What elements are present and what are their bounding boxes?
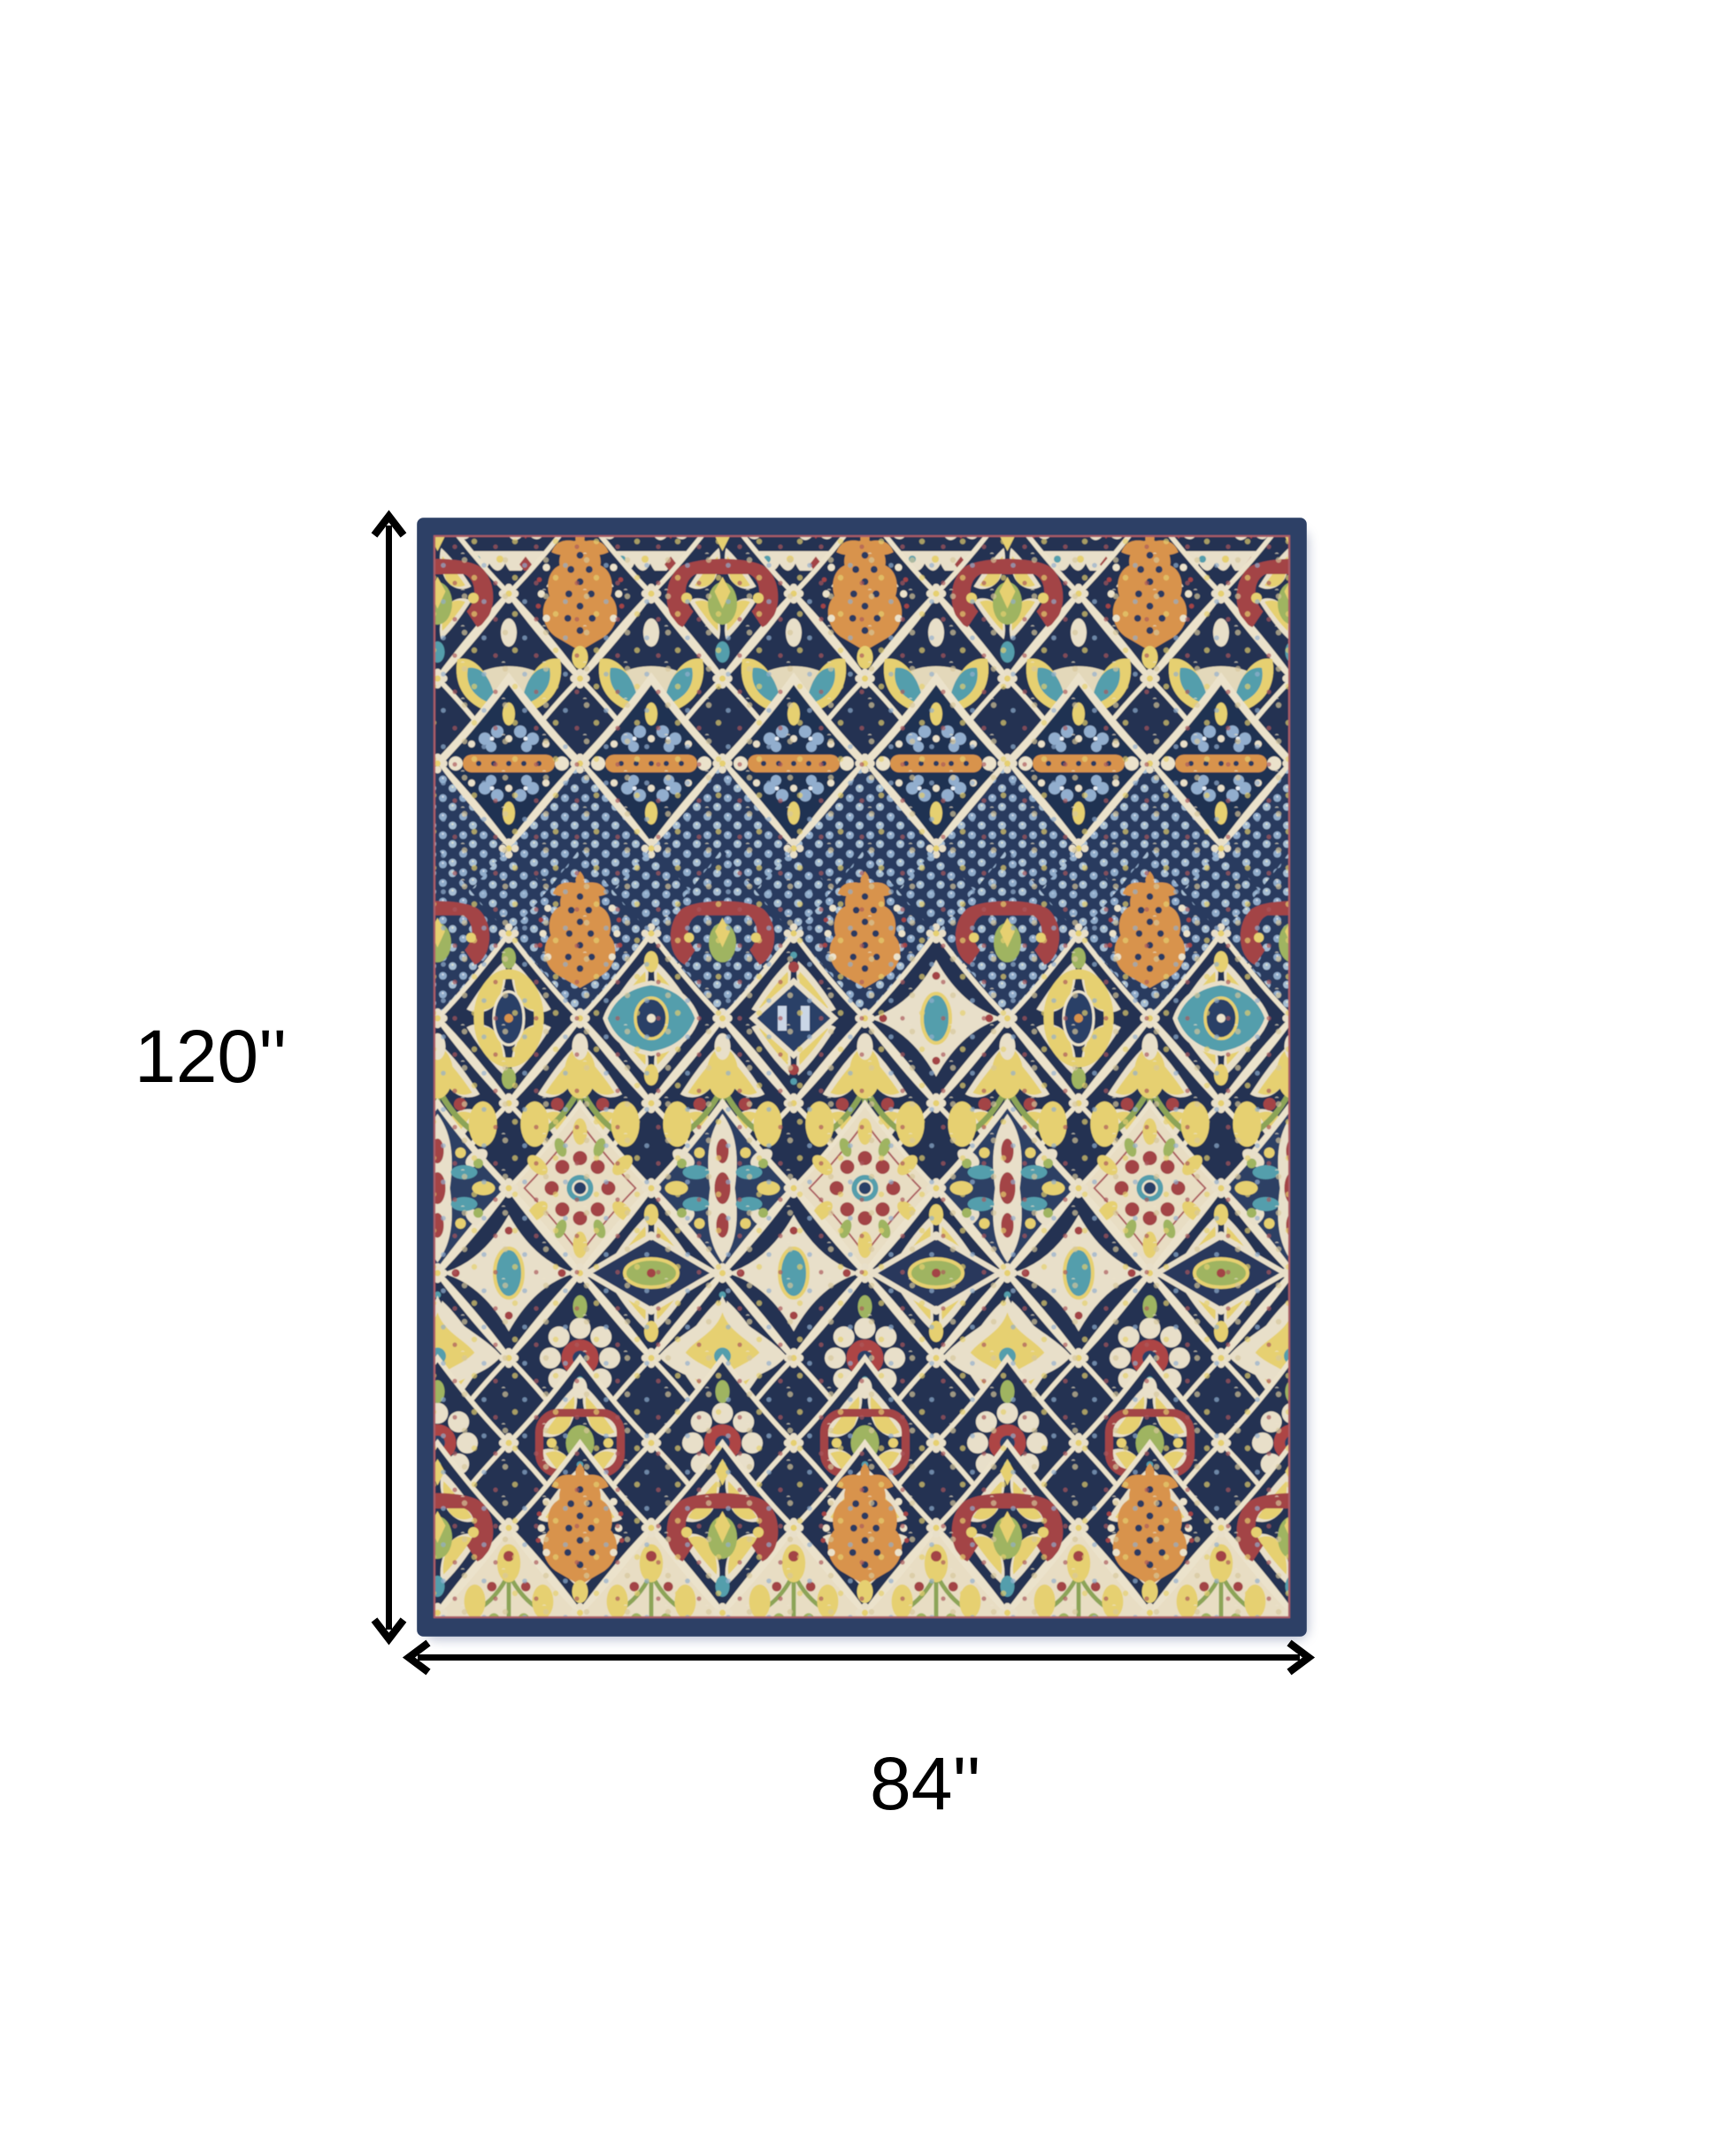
svg-text:84'': 84'' xyxy=(870,1742,981,1825)
svg-text:120'': 120'' xyxy=(134,1015,287,1098)
